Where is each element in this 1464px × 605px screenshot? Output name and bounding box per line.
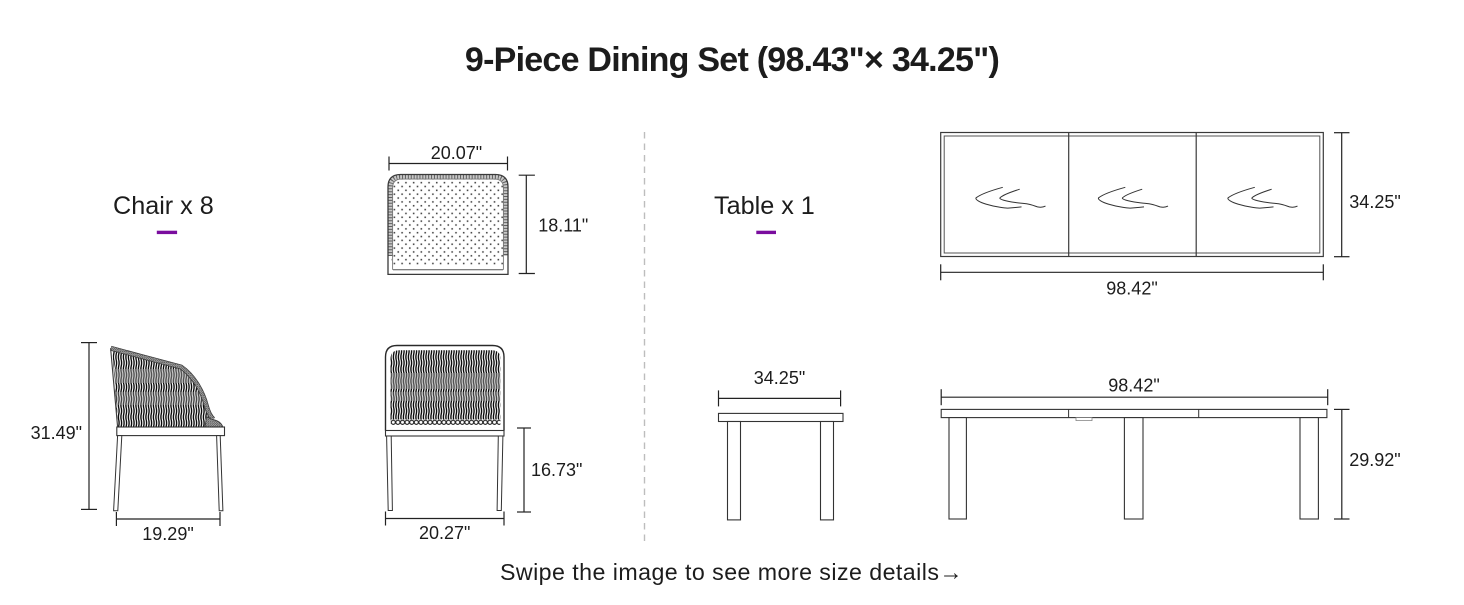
svg-text:Chair x 8: Chair x 8 (113, 192, 214, 220)
svg-text:98.42": 98.42" (1106, 279, 1157, 299)
svg-text:31.49": 31.49" (31, 423, 82, 443)
svg-text:34.25": 34.25" (754, 368, 805, 388)
svg-text:20.27": 20.27" (419, 523, 470, 543)
svg-text:20.07": 20.07" (431, 143, 482, 163)
svg-text:34.25": 34.25" (1349, 192, 1400, 212)
svg-text:16.73": 16.73" (531, 460, 582, 480)
svg-text:98.42": 98.42" (1108, 376, 1159, 396)
svg-text:Table x 1: Table x 1 (714, 192, 815, 220)
svg-text:18.11": 18.11" (538, 215, 588, 235)
svg-text:29.92": 29.92" (1349, 450, 1400, 470)
svg-text:Swipe the image to see more si: Swipe the image to see more size details… (500, 559, 963, 585)
svg-text:19.29": 19.29" (142, 524, 193, 544)
svg-text:9-Piece Dining Set (98.43"× 34: 9-Piece Dining Set (98.43"× 34.25") (465, 41, 999, 79)
